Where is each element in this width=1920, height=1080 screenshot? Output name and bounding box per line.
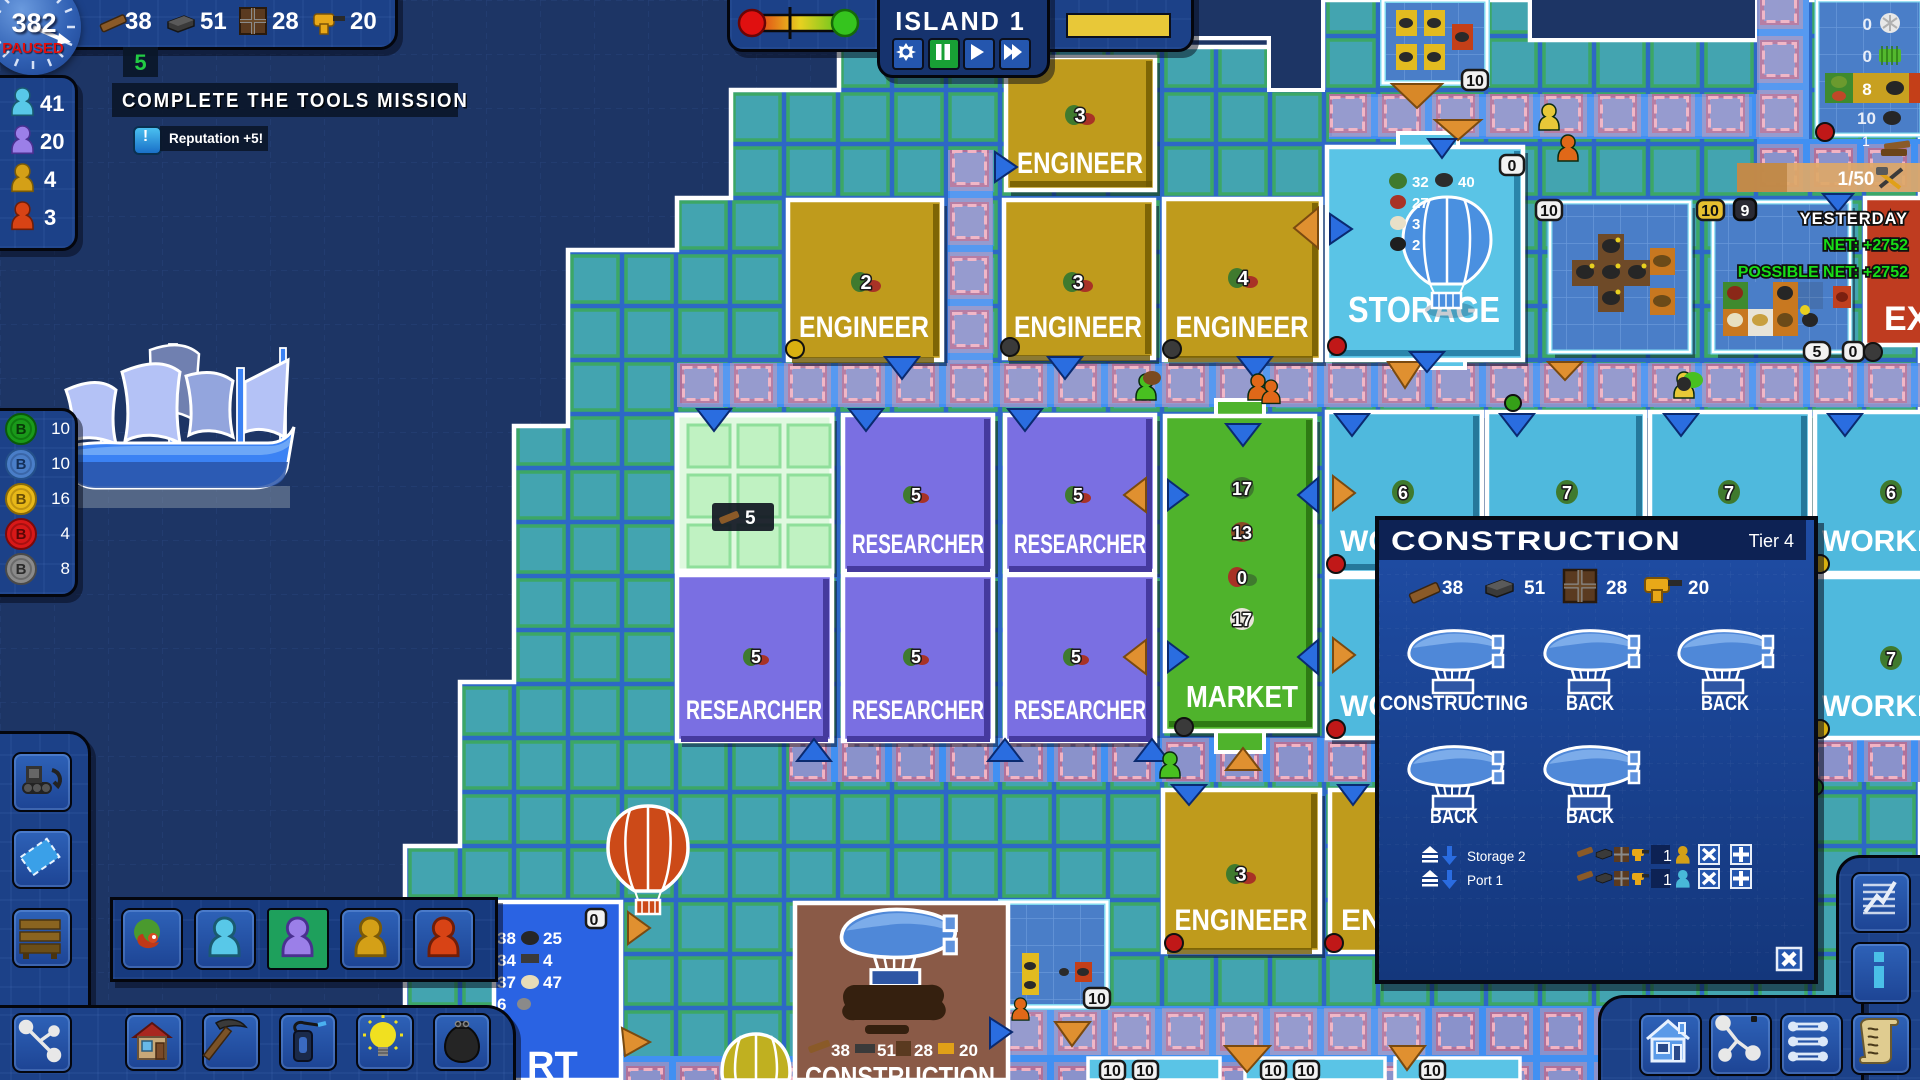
svg-text:1/50: 1/50: [1838, 169, 1875, 190]
svg-text:ENGINEER: ENGINEER: [1014, 311, 1142, 344]
svg-text:CONSTRUCTING: CONSTRUCTING: [1380, 692, 1528, 715]
svg-text:17: 17: [1232, 479, 1252, 499]
svg-text:3: 3: [1412, 216, 1420, 233]
svg-text:ENGINEER: ENGINEER: [1017, 147, 1143, 180]
svg-text:STORAGE: STORAGE: [1348, 289, 1500, 330]
svg-text:RT: RT: [527, 1045, 578, 1080]
svg-text:32: 32: [1412, 174, 1429, 191]
svg-text:RESEARCHER: RESEARCHER: [1014, 695, 1146, 725]
svg-text:YESTERDAY: YESTERDAY: [1800, 210, 1908, 228]
svg-text:B: B: [16, 526, 27, 543]
svg-text:27: 27: [1412, 195, 1429, 212]
svg-text:CONSTRUCTION: CONSTRUCTION: [1391, 526, 1681, 556]
svg-text:EXPORT: EXPORT: [1884, 300, 1920, 338]
svg-text:0: 0: [1849, 344, 1858, 361]
svg-text:10: 10: [1857, 109, 1876, 128]
svg-text:B: B: [16, 456, 27, 473]
svg-text:9: 9: [1741, 203, 1750, 220]
svg-text:0: 0: [1863, 15, 1872, 34]
svg-text:BACK: BACK: [1701, 692, 1749, 715]
svg-text:28: 28: [914, 1041, 933, 1060]
svg-text:3: 3: [1235, 864, 1246, 886]
svg-text:2: 2: [1412, 237, 1420, 254]
svg-text:0: 0: [590, 912, 599, 929]
svg-text:5: 5: [1073, 485, 1083, 505]
svg-text:4: 4: [1237, 268, 1249, 290]
svg-text:WORKER: WORKER: [1822, 525, 1920, 558]
svg-text:10: 10: [1264, 1063, 1282, 1080]
svg-text:10: 10: [1297, 1063, 1315, 1080]
svg-text:51: 51: [877, 1041, 896, 1060]
svg-text:51: 51: [1524, 578, 1546, 599]
svg-text:5: 5: [911, 647, 921, 667]
svg-text:3: 3: [1072, 272, 1083, 294]
svg-text:6: 6: [1398, 483, 1408, 503]
svg-text:37: 37: [497, 973, 516, 992]
svg-text:13: 13: [1232, 523, 1252, 543]
svg-text:38: 38: [497, 929, 516, 948]
svg-text:10: 10: [1423, 1063, 1441, 1080]
svg-text:10: 10: [1701, 203, 1719, 220]
svg-text:38: 38: [831, 1041, 850, 1060]
svg-text:RESEARCHER: RESEARCHER: [1014, 529, 1146, 559]
svg-text:5: 5: [911, 485, 921, 505]
svg-text:BACK: BACK: [1430, 805, 1478, 828]
svg-text:0: 0: [1508, 158, 1517, 175]
svg-text:20: 20: [1688, 578, 1709, 599]
svg-text:3: 3: [1074, 105, 1085, 127]
svg-text:B: B: [16, 561, 27, 578]
svg-text:38: 38: [1442, 578, 1463, 599]
svg-text:NET: +2752: NET: +2752: [1823, 237, 1908, 254]
svg-text:1: 1: [1663, 872, 1672, 889]
svg-text:RESEARCHER: RESEARCHER: [852, 529, 984, 559]
svg-text:Tier 4: Tier 4: [1749, 531, 1794, 551]
svg-text:40: 40: [1458, 174, 1475, 191]
svg-text:CONSTRUCTION: CONSTRUCTION: [805, 1061, 995, 1080]
svg-text:B: B: [16, 421, 27, 438]
svg-text:20: 20: [959, 1041, 978, 1060]
svg-text:MARKET: MARKET: [1186, 679, 1298, 714]
svg-text:0: 0: [1863, 47, 1872, 66]
svg-text:Port 1: Port 1: [1467, 873, 1503, 888]
svg-text:4: 4: [543, 951, 553, 970]
svg-text:10: 10: [1466, 73, 1484, 90]
svg-text:7: 7: [1886, 649, 1896, 669]
svg-text:5: 5: [1071, 647, 1081, 667]
svg-text:BACK: BACK: [1566, 805, 1614, 828]
svg-text:6: 6: [1886, 483, 1896, 503]
svg-text:Storage 2: Storage 2: [1467, 849, 1526, 864]
svg-text:5: 5: [745, 508, 756, 529]
svg-text:B: B: [16, 491, 27, 508]
svg-text:10: 10: [1136, 1063, 1154, 1080]
svg-text:47: 47: [543, 973, 562, 992]
svg-text:RESEARCHER: RESEARCHER: [852, 695, 984, 725]
svg-text:ENGINEER: ENGINEER: [1176, 311, 1309, 344]
svg-text:1: 1: [1862, 133, 1870, 149]
svg-text:BACK: BACK: [1566, 692, 1614, 715]
svg-text:0: 0: [1237, 568, 1247, 588]
svg-text:1: 1: [1663, 848, 1672, 865]
svg-text:10: 10: [1088, 991, 1106, 1008]
svg-text:ENGINEER: ENGINEER: [1175, 904, 1308, 937]
svg-text:25: 25: [543, 929, 562, 948]
svg-text:ENGINEER: ENGINEER: [799, 311, 929, 344]
svg-text:POSSIBLE NET: +2752: POSSIBLE NET: +2752: [1738, 264, 1908, 281]
svg-text:5: 5: [751, 647, 761, 667]
svg-text:WORKER: WORKER: [1822, 690, 1920, 723]
svg-text:RESEARCHER: RESEARCHER: [686, 695, 822, 725]
svg-text:8: 8: [1862, 80, 1871, 99]
svg-text:10: 10: [1540, 203, 1558, 220]
svg-text:2: 2: [860, 272, 871, 294]
svg-text:7: 7: [1562, 483, 1572, 503]
svg-text:34: 34: [497, 951, 516, 970]
svg-text:28: 28: [1606, 578, 1627, 599]
svg-text:10: 10: [1103, 1063, 1121, 1080]
svg-text:17: 17: [1232, 610, 1252, 630]
svg-text:7: 7: [1724, 483, 1734, 503]
svg-text:5: 5: [1813, 344, 1822, 361]
